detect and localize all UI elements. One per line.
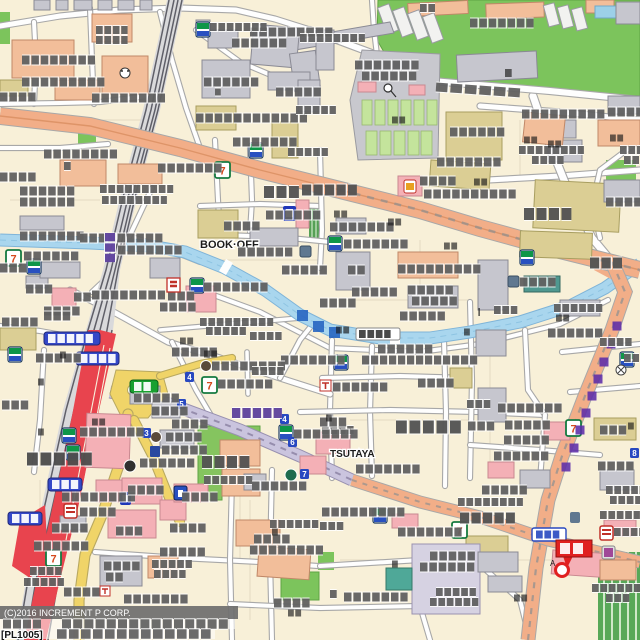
svg-text:7: 7 xyxy=(50,554,56,566)
svg-text:TSUTAYA: TSUTAYA xyxy=(330,449,375,460)
svg-text:8: 8 xyxy=(632,449,637,458)
svg-text:(C)2016 INCREMENT P CORP.: (C)2016 INCREMENT P CORP. xyxy=(4,608,131,618)
svg-text:4: 4 xyxy=(282,415,287,424)
svg-text:A: A xyxy=(550,559,556,568)
svg-text:7: 7 xyxy=(302,470,307,479)
svg-text:3: 3 xyxy=(144,429,149,438)
svg-text:[PL1005]: [PL1005] xyxy=(1,630,43,640)
svg-text:7: 7 xyxy=(206,381,212,393)
svg-text:4: 4 xyxy=(187,373,192,382)
